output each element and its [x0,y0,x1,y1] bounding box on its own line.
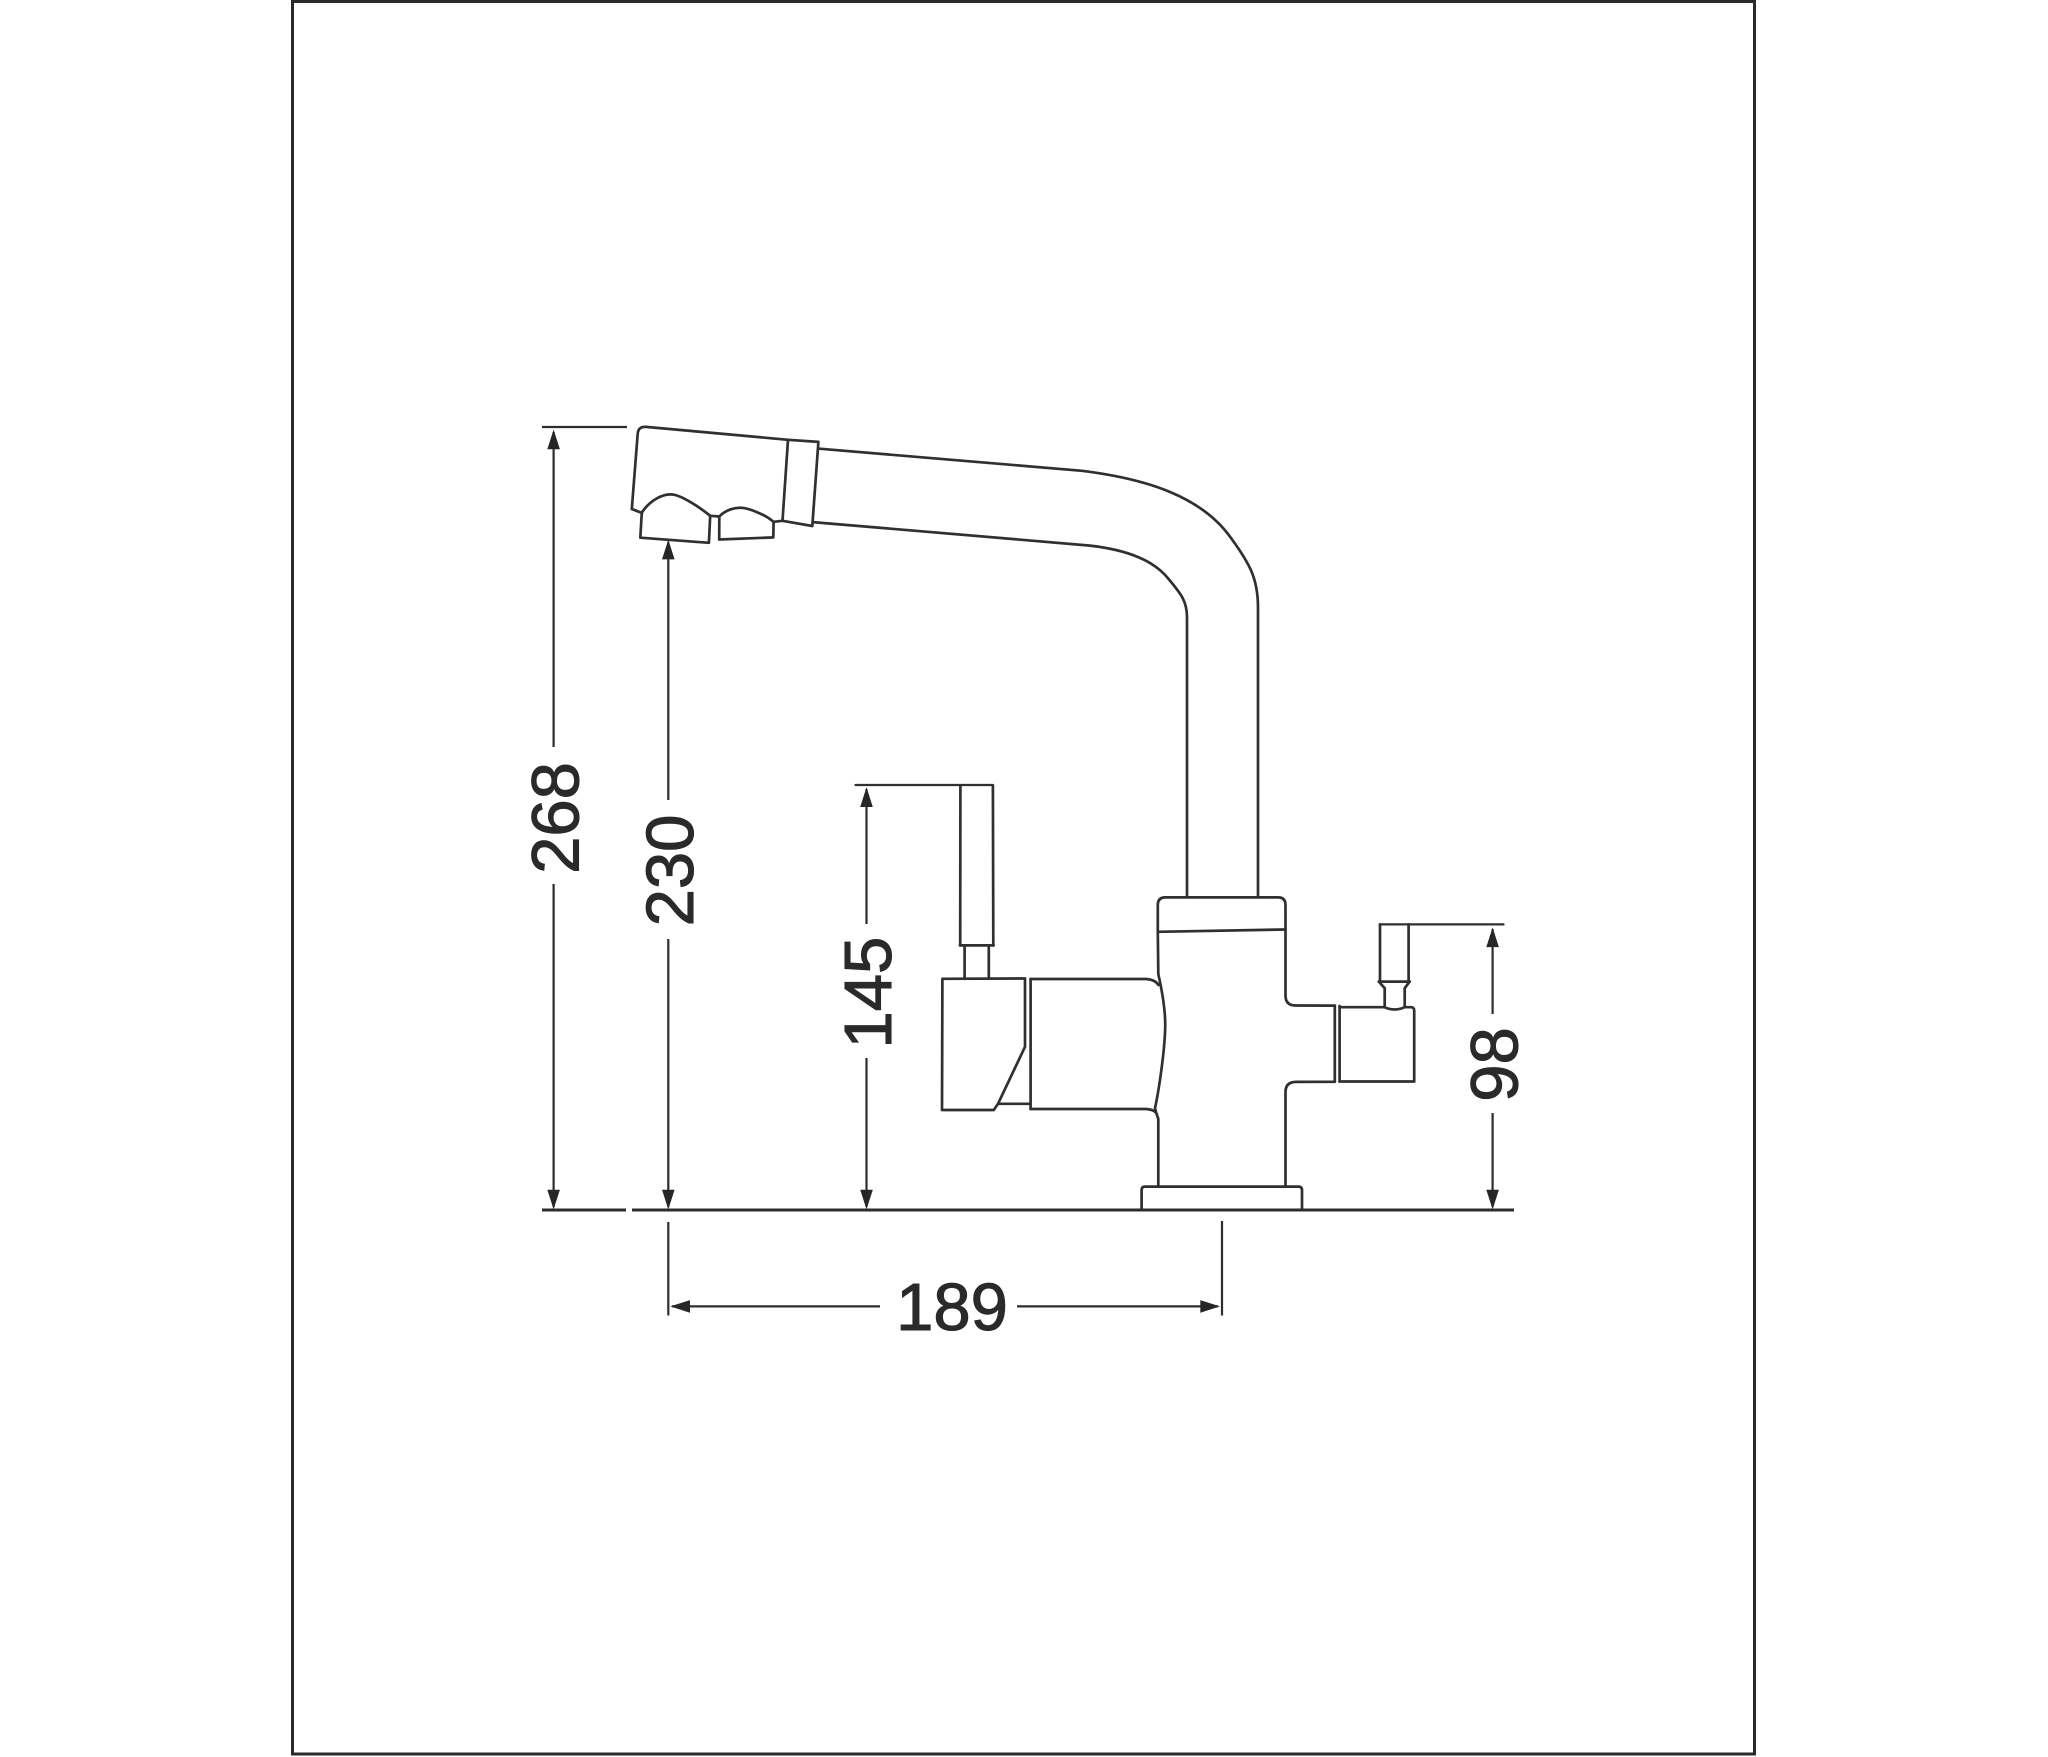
svg-text:145: 145 [831,937,906,1049]
svg-text:189: 189 [896,1270,1008,1345]
svg-text:98: 98 [1458,1027,1533,1102]
svg-text:268: 268 [519,762,594,874]
svg-text:230: 230 [633,815,708,927]
